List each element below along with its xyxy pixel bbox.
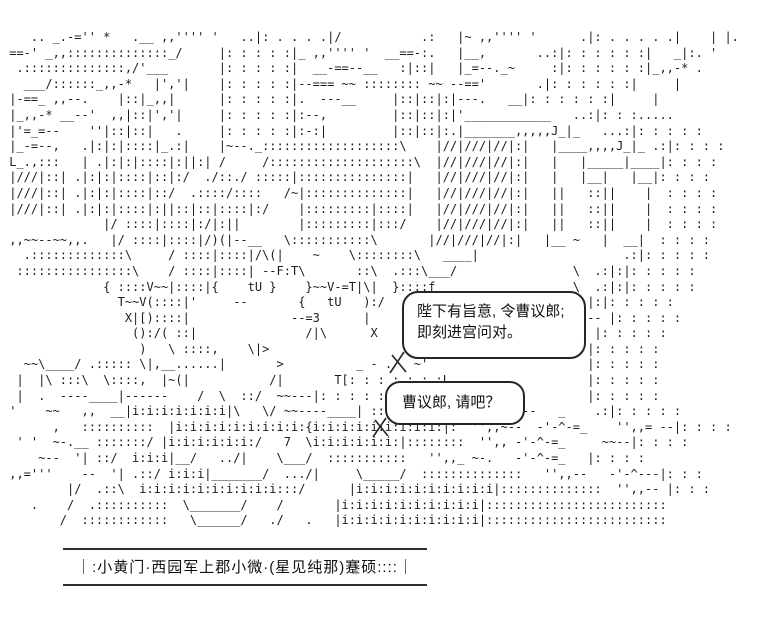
speech-bubble-1: 陛下有旨意, 令曹议郎; 即刻进宫问对。 <box>402 291 586 359</box>
speech-bubble-1-line-1: 陛下有旨意, 令曹议郎; <box>417 301 576 322</box>
character-caption-text: ｜:小黄门·西园军上郡小微·(星见纯那)蹇硕::::｜ <box>76 559 414 576</box>
ascii-art-background: .. _.-='' * .__ ,,'''' ' ..|: . . . .|/ … <box>2 30 739 529</box>
character-caption: ｜:小黄门·西园军上郡小微·(星见纯那)蹇硕::::｜ <box>63 548 427 586</box>
speech-bubble-1-line-2: 即刻进宫问对。 <box>417 322 576 343</box>
aa-comic-panel: .. _.-='' * .__ ,,'''' ' ..|: . . . .|/ … <box>0 0 765 622</box>
speech-bubble-2-line-1: 曹议郎, 请吧？ <box>402 383 523 423</box>
speech-bubble-2: 曹议郎, 请吧？ <box>385 381 525 425</box>
